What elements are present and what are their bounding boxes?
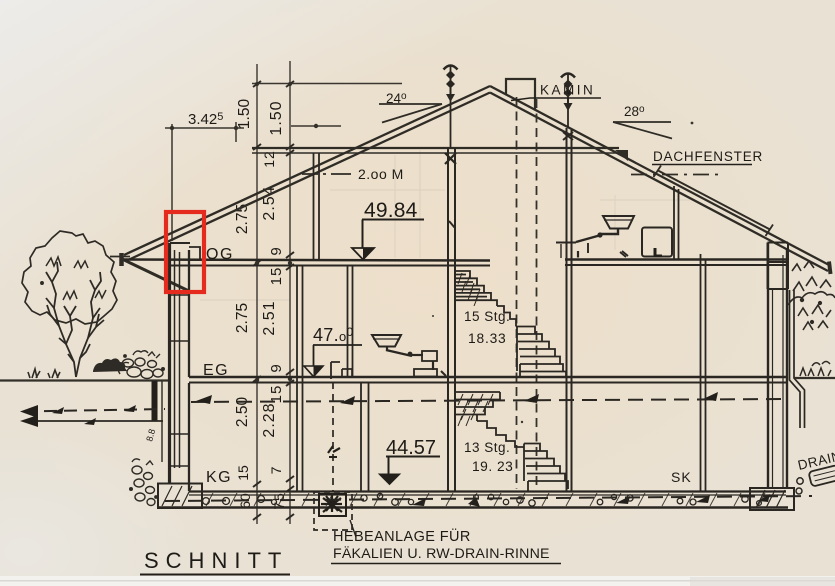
svg-text:FÄKALIEN U. RW-DRAIN-RINNE: FÄKALIEN U. RW-DRAIN-RINNE xyxy=(333,545,550,562)
svg-text:SCHNITT: SCHNITT xyxy=(144,548,288,573)
svg-text:1.50: 1.50 xyxy=(268,100,285,135)
svg-text:2.75: 2.75 xyxy=(234,204,251,234)
svg-text:HEBEANLAGE FÜR: HEBEANLAGE FÜR xyxy=(333,527,471,545)
svg-text:DACHFENSTER: DACHFENSTER xyxy=(653,149,763,164)
svg-text:2.51: 2.51 xyxy=(261,300,278,335)
svg-text:1.50: 1.50 xyxy=(236,99,253,130)
svg-text:15: 15 xyxy=(268,267,285,286)
svg-text:19. 23: 19. 23 xyxy=(472,459,513,474)
svg-text:13 Stg.: 13 Stg. xyxy=(464,440,510,455)
svg-text:EG: EG xyxy=(203,362,229,379)
svg-text:SK: SK xyxy=(671,469,692,485)
svg-text:7: 7 xyxy=(268,466,284,475)
svg-text:2.oo M: 2.oo M xyxy=(358,166,404,182)
svg-text:OG: OG xyxy=(206,246,234,263)
svg-text:15: 15 xyxy=(235,465,251,481)
svg-text:KG: KG xyxy=(206,469,232,486)
svg-text:18.33: 18.33 xyxy=(468,331,507,346)
svg-text:2.28: 2.28 xyxy=(261,402,278,437)
svg-text:15: 15 xyxy=(268,385,285,404)
svg-text:15 Stg.: 15 Stg. xyxy=(464,309,510,324)
svg-text:KAMIN: KAMIN xyxy=(540,83,595,98)
svg-text:2.75: 2.75 xyxy=(234,303,251,333)
svg-text:9: 9 xyxy=(268,363,285,372)
svg-text:9: 9 xyxy=(268,246,285,255)
